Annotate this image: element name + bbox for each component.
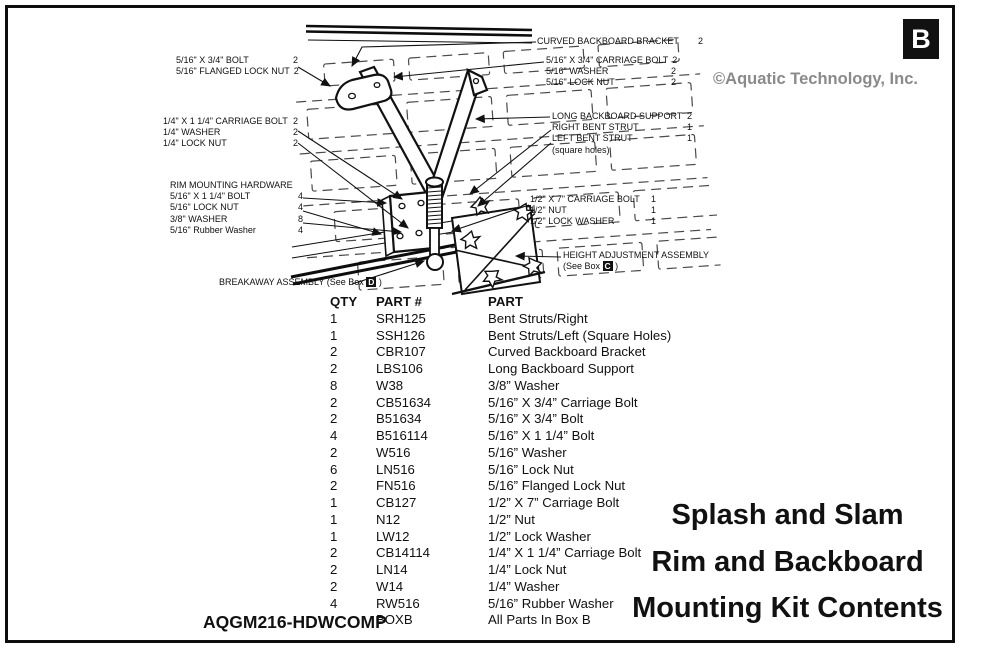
table-row: 2CB516345/16” X 3/4” Carriage Bolt (330, 395, 675, 412)
table-row: 2W5165/16” Washer (330, 445, 675, 462)
table-row: 2B516345/16” X 3/4” Bolt (330, 411, 675, 428)
callout-row: 3/8" WASHER8 (170, 214, 303, 225)
callout-row: 5/16" X 3/4" CARRIAGE BOLT2 (546, 55, 676, 66)
callout-row: LEFT BENT STRUT1 (552, 133, 692, 144)
wing-knob-icon (471, 197, 489, 215)
title-line: Splash and Slam (615, 492, 960, 539)
callout-note: (square holes) (552, 145, 692, 156)
callout-carriage-group: 5/16" X 3/4" CARRIAGE BOLT25/16" WASHER2… (546, 55, 676, 89)
callout-quarter-group: 1/4" X 1 1/4" CARRIAGE BOLT21/4" WASHER2… (163, 116, 298, 150)
table-row: 1SSH126Bent Struts/Left (Square Holes) (330, 328, 675, 345)
box-letter-tag: B (903, 19, 939, 59)
title-line: Rim and Backboard (615, 539, 960, 586)
box-c-tag: C (603, 261, 613, 271)
callout-row: RIGHT BENT STRUT1 (552, 122, 692, 133)
table-row: 2CBR107Curved Backboard Bracket (330, 344, 675, 361)
callout-row: 1/2" LOCK WASHER1 (530, 216, 656, 227)
callout-text: HEIGHT ADJUSTMENT ASSEMBLY (563, 250, 709, 261)
table-row: 6LN5165/16” Lock Nut (330, 462, 675, 479)
callout-row: 5/16" LOCK NUT2 (546, 77, 676, 88)
callout-row: 1/4" WASHER2 (163, 127, 298, 138)
callout-row: 5/16" Rubber Washer4 (170, 225, 303, 236)
callout-curved-bracket: CURVED BACKBOARD BRACKET2 (537, 36, 703, 47)
table-row: 8W383/8” Washer (330, 378, 675, 395)
callout-half-group: 1/2" X 7" CARRIAGE BOLT11/2" NUT11/2" LO… (530, 194, 656, 228)
callout-height-adjust: HEIGHT ADJUSTMENT ASSEMBLY (See Box C ) (563, 250, 709, 272)
title-line: Mounting Kit Contents (615, 585, 960, 632)
table-row: 2LBS106Long Backboard Support (330, 361, 675, 378)
callout-support-group: LONG BACKBOARD SUPPORT2RIGHT BENT STRUT1… (552, 111, 692, 156)
box-d-tag: D (366, 277, 376, 287)
copyright-text: ©Aquatic Technology, Inc. (713, 70, 918, 89)
table-row: 4B5161145/16” X 1 1/4” Bolt (330, 428, 675, 445)
callout-row: 1/4" LOCK NUT2 (163, 138, 298, 149)
callout-row: 5/16" LOCK NUT4 (170, 202, 303, 213)
callout-row: 1/2" NUT1 (530, 205, 656, 216)
callout-breakaway: BREAKAWAY ASSEMBLY (See Box D ) (219, 277, 382, 288)
callout-row: CURVED BACKBOARD BRACKET2 (537, 36, 703, 47)
callout-title: RIM MOUNTING HARDWARE (170, 180, 303, 191)
sheet-title: Splash and SlamRim and BackboardMounting… (615, 492, 960, 632)
callout-row: 1/4" X 1 1/4" CARRIAGE BOLT2 (163, 116, 298, 127)
carriage-bolt (426, 178, 443, 271)
instruction-sheet: B ©Aquatic Technology, Inc. 5/16" X 3/4"… (0, 0, 1000, 658)
breakaway-ball (427, 254, 443, 270)
callout-rim-group: RIM MOUNTING HARDWARE 5/16" X 1 1/4" BOL… (170, 180, 303, 236)
callout-bolt-group: 5/16" X 3/4" BOLT25/16" FLANGED LOCK NUT… (176, 55, 298, 77)
table-header-row: QTYPART #PART (330, 294, 675, 311)
callout-row: 5/16" WASHER2 (546, 66, 676, 77)
top-rail (306, 26, 532, 43)
footer-part-code: AQGM216-HDWCOMP (203, 612, 387, 633)
callout-row: LONG BACKBOARD SUPPORT2 (552, 111, 692, 122)
callout-text: (See Box (563, 261, 603, 271)
callout-row: 5/16" X 3/4" BOLT2 (176, 55, 298, 66)
callout-text: ) (613, 261, 619, 271)
callout-text: BREAKAWAY ASSEMBLY (See Box (219, 277, 366, 287)
callout-text: ) (376, 277, 382, 287)
callout-row: 1/2" X 7" CARRIAGE BOLT1 (530, 194, 656, 205)
callout-row: 5/16" FLANGED LOCK NUT2 (176, 66, 298, 77)
callout-row: 5/16" X 1 1/4" BOLT4 (170, 191, 303, 202)
table-row: 1SRH125Bent Struts/Right (330, 311, 675, 328)
